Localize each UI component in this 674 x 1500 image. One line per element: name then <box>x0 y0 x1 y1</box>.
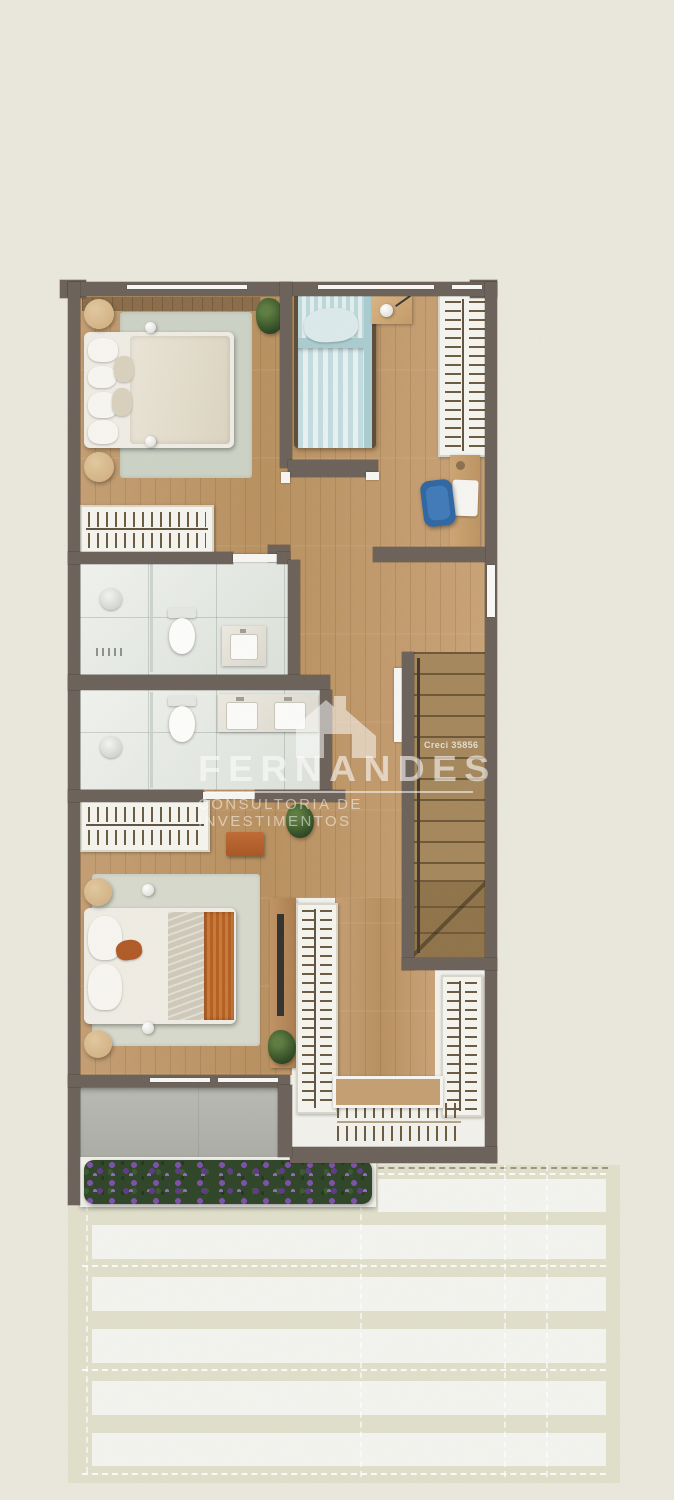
window <box>150 1078 210 1082</box>
toilet <box>169 618 195 654</box>
window <box>218 1078 278 1082</box>
rail <box>462 299 464 451</box>
table-lamp <box>142 1022 154 1034</box>
pillow <box>303 306 359 344</box>
hangers <box>447 982 459 1110</box>
duvet <box>120 912 170 1020</box>
projection-line <box>82 1473 606 1475</box>
projection-line <box>360 1165 362 1477</box>
table-lamp <box>142 884 154 896</box>
hangers <box>88 807 202 822</box>
bedroom3-double-bed <box>84 908 236 1024</box>
projection-line <box>504 1165 506 1477</box>
hangers <box>469 301 485 449</box>
wall-hall <box>373 547 485 562</box>
hangers <box>88 512 206 527</box>
pillow <box>88 338 118 362</box>
hangers <box>302 910 314 1107</box>
wall-bedroom2 <box>288 460 378 477</box>
door-leaf <box>394 668 402 742</box>
shower-head <box>100 588 122 610</box>
table-lamp <box>145 322 156 333</box>
hangers <box>88 830 202 845</box>
wall-bedroom3 <box>68 790 203 802</box>
wall-bedroom-divider <box>280 282 292 468</box>
bedroom1-wardrobe <box>80 505 214 555</box>
accent-pillow <box>112 388 132 416</box>
pergola-slat <box>92 1329 606 1363</box>
projection-line <box>546 1165 548 1477</box>
wall-right <box>485 282 497 970</box>
closet-rack-bottom <box>337 1103 461 1141</box>
nightstand <box>84 878 112 906</box>
wall-bath-divider <box>68 675 330 690</box>
bench-orange <box>226 832 264 856</box>
pergola-slat <box>92 1433 606 1466</box>
desk-accessory <box>456 461 465 470</box>
closet-island <box>333 1076 443 1108</box>
wall-bathroom1 <box>68 552 233 564</box>
hangers <box>445 301 461 449</box>
window <box>487 565 495 617</box>
nightstand <box>84 299 114 329</box>
table-lamp <box>380 304 393 317</box>
pergola-slat <box>92 1225 606 1259</box>
window <box>127 285 247 289</box>
wall-stairs-bottom <box>402 958 497 970</box>
nightstand <box>84 452 114 482</box>
basin <box>230 634 258 660</box>
duvet <box>130 336 230 444</box>
basin <box>226 702 258 730</box>
tv-panel <box>277 914 284 1016</box>
faucet <box>240 629 246 633</box>
pergola-terrace <box>68 1165 620 1483</box>
watermark-divider <box>205 791 473 793</box>
shower-glass <box>150 562 153 672</box>
bedroom3-wardrobe <box>80 800 210 852</box>
table-lamp <box>145 436 156 447</box>
double-sink-vanity <box>218 694 318 732</box>
quilt <box>168 912 204 1020</box>
shower-glass <box>150 692 153 788</box>
door-jamb <box>366 472 379 480</box>
pergola-slat <box>92 1381 606 1415</box>
balcony-deck <box>80 1087 278 1157</box>
rail <box>86 824 204 826</box>
pillow <box>88 964 122 1010</box>
projection-line <box>368 1167 608 1169</box>
rail <box>459 981 461 1111</box>
closet-rack-left <box>296 903 338 1114</box>
closet-rack-right <box>441 975 483 1117</box>
nightstand <box>84 1030 112 1058</box>
hangers <box>337 1126 461 1141</box>
window <box>452 285 482 289</box>
faucet <box>236 697 244 701</box>
stair-treads <box>414 652 485 880</box>
wall-bathroom2-right <box>320 690 332 792</box>
stair-handrail <box>417 658 420 953</box>
wall-left <box>68 282 80 1205</box>
sink-vanity <box>222 626 266 666</box>
chair-seat <box>425 485 451 521</box>
flower-planter <box>80 1157 376 1207</box>
door-leaf <box>203 792 255 799</box>
laptop <box>451 480 478 517</box>
bedroom1-double-bed <box>84 332 234 448</box>
orange-throw <box>204 912 234 1020</box>
hangers <box>88 533 206 548</box>
basin <box>274 702 306 730</box>
floor-plan-render: { "watermark": { "brand": "FERNANDES", "… <box>0 0 674 1500</box>
purple-flowers <box>84 1160 372 1204</box>
bedroom2-wardrobe <box>438 293 492 457</box>
projection-line <box>368 1173 606 1175</box>
office-chair <box>419 478 456 528</box>
potted-plant <box>286 804 314 838</box>
pillow <box>88 420 118 444</box>
wall-stairs <box>402 652 414 970</box>
window <box>318 285 434 289</box>
projection-line <box>82 1369 606 1371</box>
projection-line <box>82 1265 606 1267</box>
pergola-slat <box>378 1179 606 1212</box>
wall-bathroom1-right <box>288 560 300 675</box>
floor-drain <box>96 648 126 656</box>
projection-line <box>86 1205 88 1473</box>
bedroom2-single-bed <box>294 294 376 448</box>
faucet <box>284 697 292 701</box>
door-jamb <box>281 472 290 483</box>
door-leaf <box>233 554 277 562</box>
pergola-slat <box>92 1277 606 1311</box>
rail <box>86 528 208 530</box>
toilet <box>169 706 195 742</box>
accent-pillow <box>114 356 134 382</box>
rail <box>314 909 316 1108</box>
potted-plant <box>268 1030 296 1064</box>
wall-right-lower <box>485 970 497 1163</box>
striped-blanket <box>298 348 364 448</box>
shower-head <box>100 736 122 758</box>
wall-balcony-divider <box>278 1085 292 1157</box>
toilet-tank <box>168 608 196 618</box>
stair-winder-landing <box>414 880 485 958</box>
hangers <box>465 982 477 1110</box>
wall-closet-bottom <box>290 1147 497 1163</box>
toilet-tank <box>168 696 196 706</box>
pillow <box>88 366 116 388</box>
rail <box>337 1121 461 1123</box>
hangers <box>320 910 332 1107</box>
